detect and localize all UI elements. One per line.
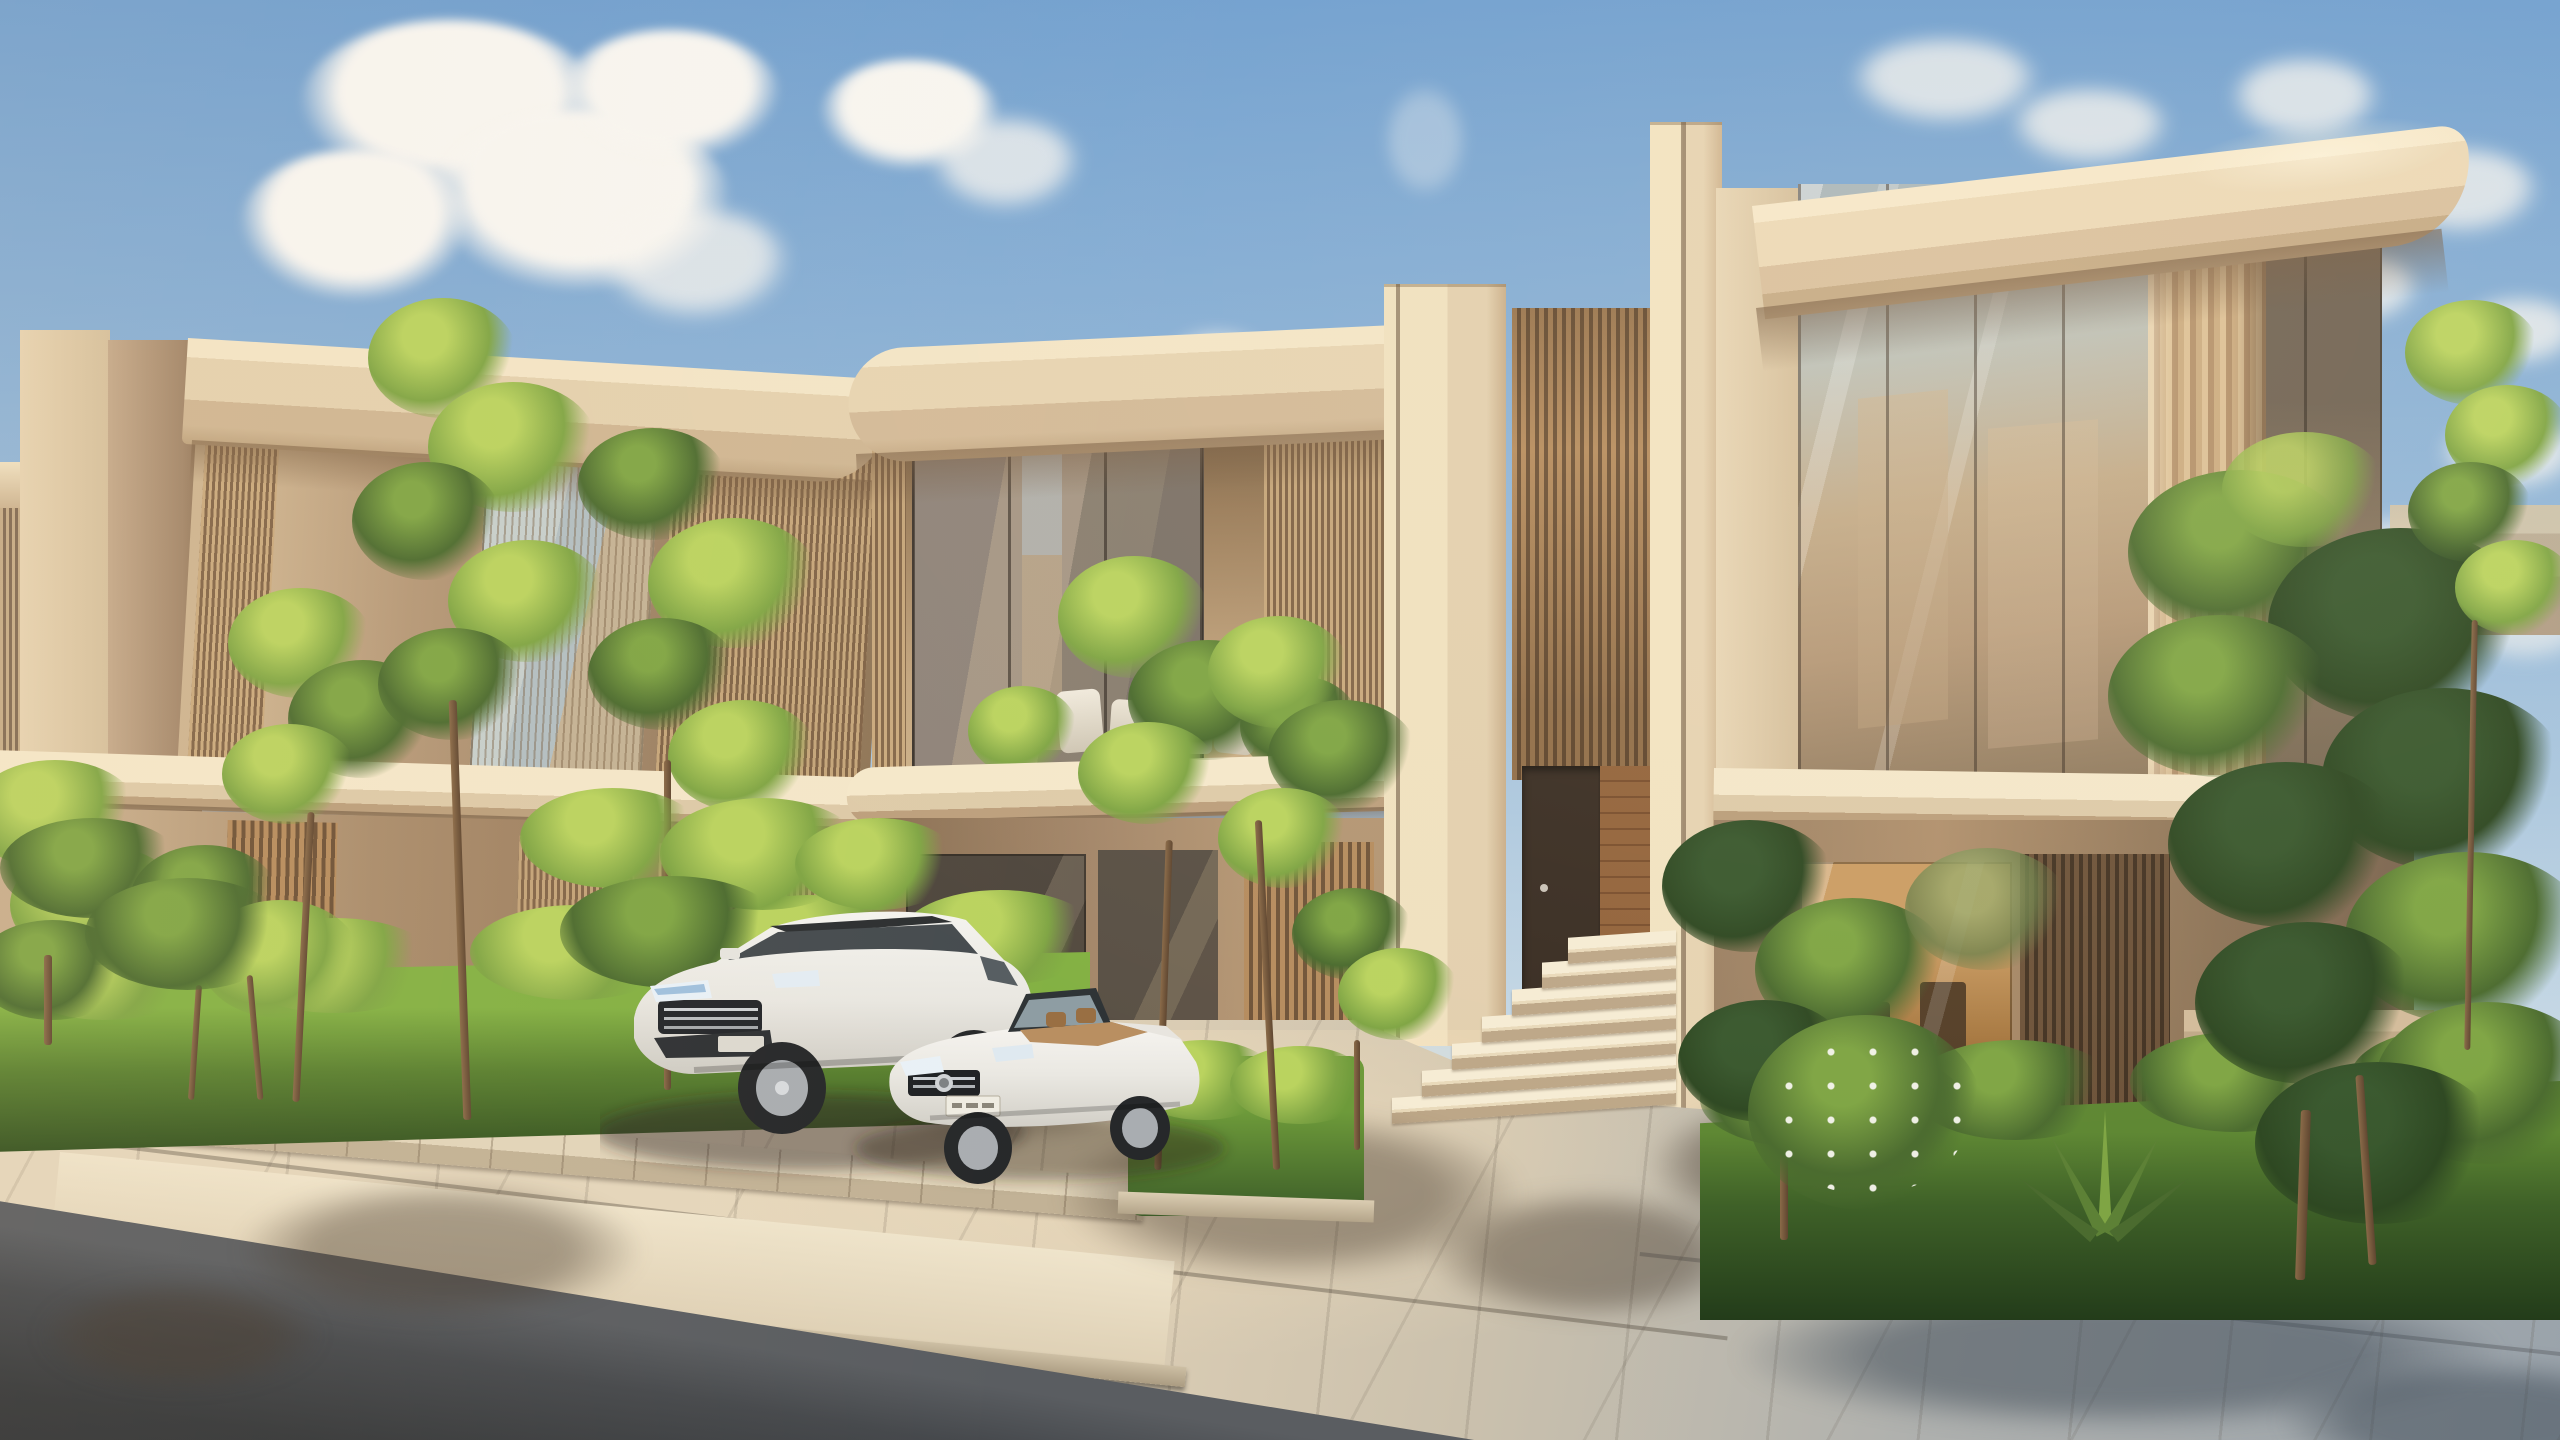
hub-cap	[775, 1081, 789, 1095]
tree	[0, 0, 2560, 1440]
suv-plate	[718, 1036, 764, 1052]
plate-glyphs	[952, 1103, 962, 1108]
alloy-rim	[958, 1126, 998, 1170]
foliage	[2222, 432, 2387, 547]
landscaping	[0, 0, 2560, 1440]
grille-bar	[664, 1008, 758, 1011]
scene: Golden-hour rendering of a modern beige …	[0, 0, 2560, 1440]
headrest	[1076, 1008, 1096, 1023]
grille-bar	[664, 1026, 758, 1029]
plate-glyphs	[966, 1103, 978, 1108]
plate-glyphs	[982, 1103, 994, 1108]
parked-cars	[600, 880, 1260, 1220]
flower-speckles	[1768, 1035, 1968, 1195]
headrest	[1046, 1012, 1066, 1027]
grille-bar	[664, 1017, 758, 1020]
yucca-plant	[2040, 1090, 2170, 1260]
foliage	[2255, 1062, 2500, 1224]
suv-mirror	[720, 948, 740, 959]
foliage	[1905, 848, 2070, 970]
foliage	[2108, 615, 2333, 777]
yucca-leaf	[2098, 1110, 2112, 1230]
alloy-rim	[1122, 1108, 1158, 1148]
brand-badge-inner	[939, 1078, 949, 1088]
